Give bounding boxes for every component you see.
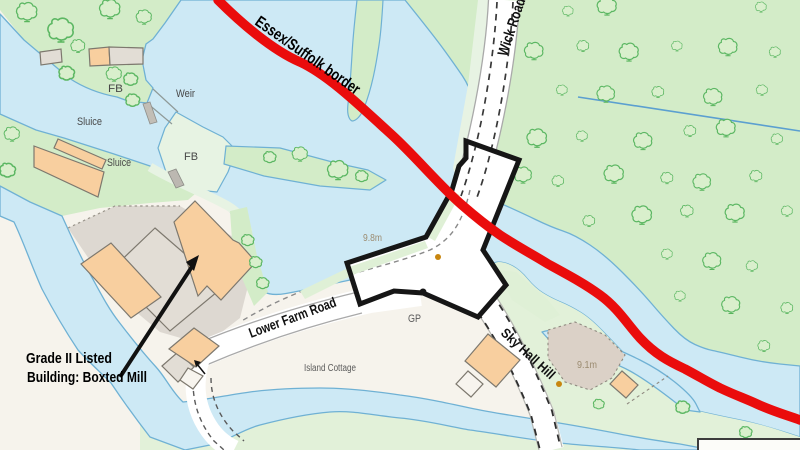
svg-text:Building: Boxted Mill: Building: Boxted Mill [27, 369, 147, 386]
svg-text:Weir: Weir [176, 88, 195, 100]
svg-text:Grade II Listed: Grade II Listed [26, 350, 112, 367]
svg-text:Sluice: Sluice [107, 157, 131, 169]
svg-text:Sluice: Sluice [77, 116, 102, 128]
svg-text:GP: GP [408, 313, 421, 325]
svg-text:9.8m: 9.8m [363, 232, 382, 244]
svg-text:FB: FB [108, 83, 123, 95]
svg-text:9.1m: 9.1m [577, 359, 597, 371]
svg-text:Island Cottage: Island Cottage [304, 363, 356, 374]
svg-text:FB: FB [184, 151, 198, 163]
